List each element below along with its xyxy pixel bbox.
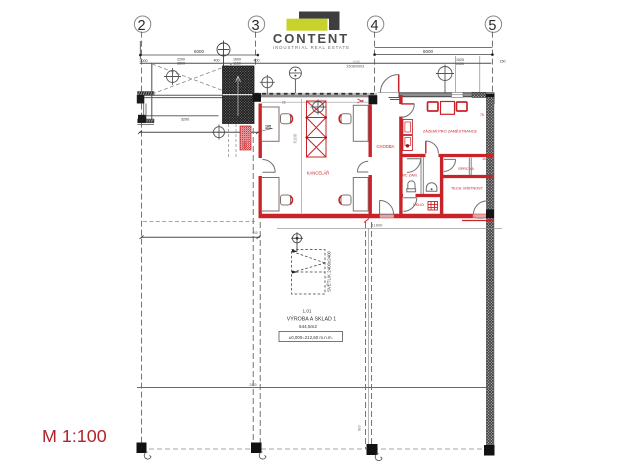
svg-text:26: 26 <box>483 157 487 161</box>
svg-text:M 1:100: M 1:100 <box>42 426 107 446</box>
svg-text:KANCELÁŘ: KANCELÁŘ <box>307 171 330 176</box>
svg-text:WC ZAM.: WC ZAM. <box>401 174 417 178</box>
svg-text:3200: 3200 <box>181 118 189 122</box>
svg-text:11600: 11600 <box>372 223 384 228</box>
svg-text:6000: 6000 <box>194 49 205 54</box>
svg-text:CHODBA: CHODBA <box>377 144 395 149</box>
svg-text:400: 400 <box>252 231 258 235</box>
svg-text:2500: 2500 <box>456 62 464 66</box>
svg-text:SPRCHA: SPRCHA <box>458 167 474 171</box>
svg-text:±0,000=212,60 m.n.m.: ±0,000=212,60 m.n.m. <box>289 335 333 340</box>
svg-text:TECH. MÍSTNOST: TECH. MÍSTNOST <box>451 187 484 191</box>
svg-text:1508/0903: 1508/0903 <box>346 64 364 68</box>
svg-text:400: 400 <box>214 59 220 63</box>
svg-text:644,5m2: 644,5m2 <box>299 324 317 329</box>
svg-text:SVĚTLÍK 2400x2400: SVĚTLÍK 2400x2400 <box>327 250 332 292</box>
svg-text:CONTENT: CONTENT <box>273 31 349 46</box>
svg-text:150: 150 <box>500 60 506 64</box>
svg-text:ÚKLID: ÚKLID <box>413 202 424 207</box>
svg-text:6100: 6100 <box>292 133 297 143</box>
svg-text:75: 75 <box>480 113 484 117</box>
svg-text:185: 185 <box>265 125 271 129</box>
svg-text:1.01: 1.01 <box>303 309 312 314</box>
svg-text:1800: 1800 <box>243 141 247 148</box>
svg-text:ZÁZEMÍ PRO ZAMĚSTNANCE: ZÁZEMÍ PRO ZAMĚSTNANCE <box>423 128 478 133</box>
svg-text:VÝROBA A SKLAD 1: VÝROBA A SKLAD 1 <box>287 316 337 323</box>
svg-text:INDUSTRIAL REAL ESTATE: INDUSTRIAL REAL ESTATE <box>273 45 350 50</box>
svg-text:8000: 8000 <box>423 49 434 54</box>
svg-text:900: 900 <box>358 425 362 431</box>
svg-text:2400: 2400 <box>249 383 256 387</box>
svg-text:400: 400 <box>254 59 260 63</box>
svg-text:2000: 2000 <box>140 59 148 63</box>
svg-text:+0,00: +0,00 <box>353 59 361 63</box>
